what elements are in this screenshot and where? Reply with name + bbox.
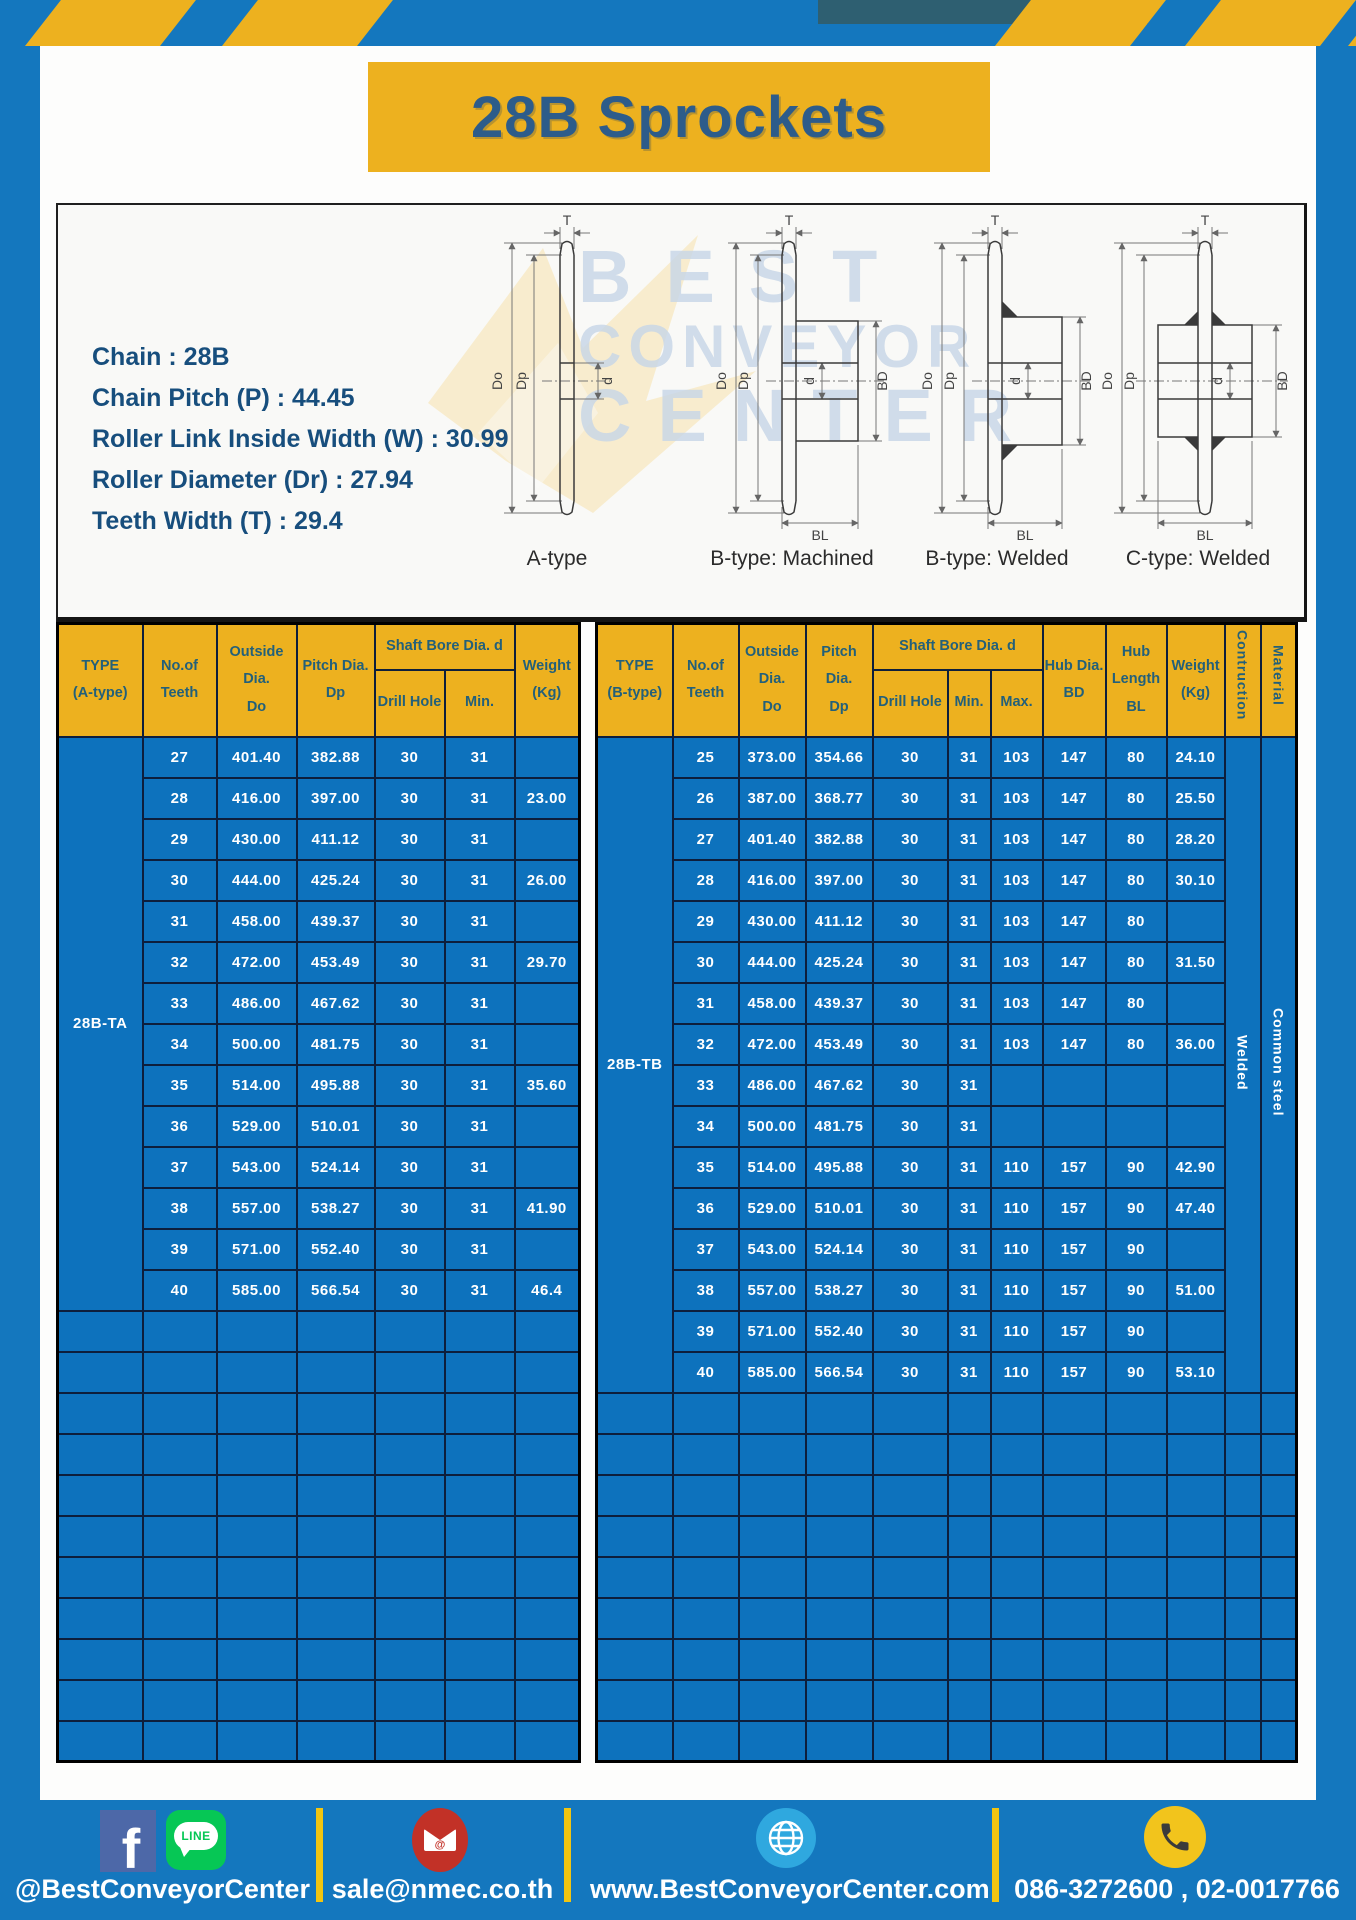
empty-cell bbox=[58, 1393, 143, 1434]
value-cell: 38 bbox=[673, 1270, 739, 1311]
page-title: 28B Sprockets bbox=[471, 84, 887, 151]
empty-cell bbox=[597, 1680, 673, 1721]
value-cell: 28 bbox=[673, 860, 739, 901]
value-cell: 30.10 bbox=[1167, 860, 1225, 901]
value-cell: 147 bbox=[1043, 1024, 1106, 1065]
value-cell: 90 bbox=[1106, 1352, 1167, 1393]
col-header-hub-dia: Hub Dia. BD bbox=[1043, 624, 1106, 737]
value-cell: 566.54 bbox=[806, 1352, 873, 1393]
value-cell: 157 bbox=[1043, 1147, 1106, 1188]
value-cell: 30 bbox=[375, 983, 445, 1024]
dim-do-label: Do bbox=[713, 372, 729, 390]
value-cell: 425.24 bbox=[806, 942, 873, 983]
empty-cell bbox=[873, 1721, 948, 1762]
empty-cell bbox=[515, 1311, 580, 1352]
value-cell: 31 bbox=[948, 983, 991, 1024]
empty-cell bbox=[58, 1352, 143, 1393]
header-row: TYPE (A-type) No.of Teeth Outside Dia. D… bbox=[58, 624, 580, 670]
value-cell: 31 bbox=[948, 860, 991, 901]
value-cell: 38 bbox=[143, 1188, 217, 1229]
empty-cell bbox=[297, 1475, 375, 1516]
empty-cell bbox=[143, 1352, 217, 1393]
col-header-shaft-bore: Shaft Bore Dia. d bbox=[375, 624, 515, 670]
empty-cell bbox=[806, 1434, 873, 1475]
header-row: TYPE (B-type) No.of Teeth Outside Dia. D… bbox=[597, 624, 1297, 670]
value-cell: 34 bbox=[673, 1106, 739, 1147]
value-cell: 500.00 bbox=[739, 1106, 806, 1147]
value-cell: 30 bbox=[375, 1024, 445, 1065]
value-cell bbox=[1106, 1106, 1167, 1147]
globe-icon bbox=[756, 1808, 816, 1868]
value-cell: 31 bbox=[445, 778, 515, 819]
value-cell: 31 bbox=[445, 983, 515, 1024]
empty-cell bbox=[1167, 1680, 1225, 1721]
data-row: 28416.00397.0030311031478030.10 bbox=[597, 860, 1297, 901]
value-cell: 40 bbox=[143, 1270, 217, 1311]
website-url: www.BestConveyorCenter.com bbox=[590, 1874, 985, 1905]
empty-cell bbox=[445, 1352, 515, 1393]
value-cell: 31 bbox=[948, 1270, 991, 1311]
value-cell: 411.12 bbox=[806, 901, 873, 942]
empty-row bbox=[58, 1434, 580, 1475]
value-cell: 157 bbox=[1043, 1188, 1106, 1229]
diagram-box: BEST CONVEYOR CENTER Chain : 28B Chain P… bbox=[56, 203, 1307, 622]
value-cell: 30 bbox=[375, 819, 445, 860]
empty-cell bbox=[375, 1311, 445, 1352]
value-cell bbox=[991, 1106, 1043, 1147]
empty-cell bbox=[597, 1475, 673, 1516]
empty-cell bbox=[1261, 1721, 1297, 1762]
diagram-label-b-machined: B-type: Machined bbox=[682, 547, 902, 571]
empty-cell bbox=[806, 1475, 873, 1516]
value-cell: 486.00 bbox=[739, 1065, 806, 1106]
value-cell: 103 bbox=[991, 1024, 1043, 1065]
empty-cell bbox=[673, 1475, 739, 1516]
value-cell: 510.01 bbox=[297, 1106, 375, 1147]
empty-cell bbox=[1043, 1393, 1106, 1434]
col-header-shaft-bore: Shaft Bore Dia. d bbox=[873, 624, 1043, 670]
value-cell: 90 bbox=[1106, 1311, 1167, 1352]
data-row: 28B-TA27401.40382.883031 bbox=[58, 737, 580, 778]
value-cell: 53.10 bbox=[1167, 1352, 1225, 1393]
line-badge-text: LINE bbox=[181, 1829, 210, 1843]
value-cell: 39 bbox=[143, 1229, 217, 1270]
empty-cell bbox=[445, 1393, 515, 1434]
empty-cell bbox=[1225, 1721, 1261, 1762]
value-cell: 32 bbox=[143, 942, 217, 983]
material-cell-text: Common steel bbox=[1271, 1008, 1285, 1116]
empty-cell bbox=[806, 1516, 873, 1557]
value-cell: 31 bbox=[445, 1229, 515, 1270]
empty-cell bbox=[873, 1598, 948, 1639]
value-cell: 31 bbox=[948, 1024, 991, 1065]
empty-cell bbox=[297, 1311, 375, 1352]
empty-row bbox=[597, 1598, 1297, 1639]
value-cell: 30 bbox=[375, 942, 445, 983]
diagram-label-a-type: A-type bbox=[442, 547, 672, 571]
value-cell: 439.37 bbox=[806, 983, 873, 1024]
social-handle: @BestConveyorCenter bbox=[5, 1874, 320, 1905]
empty-row bbox=[597, 1680, 1297, 1721]
empty-cell bbox=[143, 1516, 217, 1557]
value-cell: 32 bbox=[673, 1024, 739, 1065]
empty-cell bbox=[1261, 1557, 1297, 1598]
value-cell: 524.14 bbox=[297, 1147, 375, 1188]
value-cell: 157 bbox=[1043, 1270, 1106, 1311]
value-cell: 31 bbox=[673, 983, 739, 1024]
value-cell: 103 bbox=[991, 942, 1043, 983]
empty-cell bbox=[143, 1557, 217, 1598]
empty-cell bbox=[1043, 1434, 1106, 1475]
empty-cell bbox=[1043, 1516, 1106, 1557]
value-cell: 524.14 bbox=[806, 1229, 873, 1270]
value-cell: 30 bbox=[673, 942, 739, 983]
empty-cell bbox=[673, 1393, 739, 1434]
empty-cell bbox=[1167, 1639, 1225, 1680]
value-cell: 30 bbox=[873, 901, 948, 942]
empty-cell bbox=[217, 1598, 297, 1639]
empty-cell bbox=[58, 1434, 143, 1475]
empty-cell bbox=[948, 1393, 991, 1434]
empty-cell bbox=[873, 1680, 948, 1721]
dim-d-label: d bbox=[801, 377, 817, 385]
empty-row bbox=[597, 1475, 1297, 1516]
value-cell: 453.49 bbox=[297, 942, 375, 983]
value-cell: 30 bbox=[375, 1147, 445, 1188]
value-cell: 110 bbox=[991, 1270, 1043, 1311]
value-cell: 444.00 bbox=[217, 860, 297, 901]
value-cell: 110 bbox=[991, 1311, 1043, 1352]
value-cell: 42.90 bbox=[1167, 1147, 1225, 1188]
email-icon: @ bbox=[412, 1808, 468, 1872]
value-cell: 29 bbox=[143, 819, 217, 860]
value-cell: 430.00 bbox=[739, 901, 806, 942]
value-cell: 30 bbox=[873, 1229, 948, 1270]
value-cell: 31 bbox=[445, 1188, 515, 1229]
empty-cell bbox=[297, 1680, 375, 1721]
b-type-table: TYPE (B-type) No.of Teeth Outside Dia. D… bbox=[595, 622, 1298, 1763]
value-cell: 31 bbox=[445, 1065, 515, 1106]
value-cell bbox=[515, 1229, 580, 1270]
value-cell: 30 bbox=[873, 819, 948, 860]
empty-cell bbox=[1106, 1598, 1167, 1639]
empty-row bbox=[58, 1557, 580, 1598]
empty-cell bbox=[739, 1434, 806, 1475]
value-cell: 397.00 bbox=[806, 860, 873, 901]
empty-cell bbox=[1225, 1393, 1261, 1434]
empty-cell bbox=[515, 1598, 580, 1639]
empty-cell bbox=[297, 1393, 375, 1434]
empty-cell bbox=[873, 1434, 948, 1475]
value-cell: 411.12 bbox=[297, 819, 375, 860]
value-cell: 31 bbox=[143, 901, 217, 942]
empty-cell bbox=[515, 1434, 580, 1475]
empty-cell bbox=[515, 1557, 580, 1598]
data-row: 26387.00368.7730311031478025.50 bbox=[597, 778, 1297, 819]
data-row: 32472.00453.4930311031478036.00 bbox=[597, 1024, 1297, 1065]
empty-cell bbox=[991, 1680, 1043, 1721]
empty-cell bbox=[217, 1557, 297, 1598]
empty-cell bbox=[217, 1434, 297, 1475]
value-cell bbox=[515, 901, 580, 942]
empty-cell bbox=[445, 1311, 515, 1352]
value-cell: 27 bbox=[673, 819, 739, 860]
value-cell: 472.00 bbox=[217, 942, 297, 983]
value-cell: 387.00 bbox=[739, 778, 806, 819]
empty-cell bbox=[1043, 1680, 1106, 1721]
value-cell: 514.00 bbox=[217, 1065, 297, 1106]
empty-cell bbox=[991, 1557, 1043, 1598]
empty-cell bbox=[515, 1680, 580, 1721]
facebook-icon: f bbox=[100, 1810, 156, 1872]
col-header-min: Min. bbox=[948, 670, 991, 737]
empty-cell bbox=[58, 1721, 143, 1762]
value-cell: 368.77 bbox=[806, 778, 873, 819]
empty-cell bbox=[806, 1721, 873, 1762]
empty-cell bbox=[597, 1557, 673, 1598]
empty-cell bbox=[873, 1393, 948, 1434]
value-cell: 585.00 bbox=[217, 1270, 297, 1311]
line-bubble: LINE bbox=[174, 1822, 218, 1850]
value-cell: 425.24 bbox=[297, 860, 375, 901]
value-cell: 36 bbox=[673, 1188, 739, 1229]
value-cell: 31 bbox=[948, 1352, 991, 1393]
value-cell: 110 bbox=[991, 1188, 1043, 1229]
empty-cell bbox=[1261, 1475, 1297, 1516]
col-header-outside: Outside Dia. Do bbox=[217, 624, 297, 737]
value-cell: 495.88 bbox=[297, 1065, 375, 1106]
empty-cell bbox=[1106, 1516, 1167, 1557]
value-cell: 37 bbox=[673, 1229, 739, 1270]
value-cell: 31 bbox=[948, 1188, 991, 1229]
empty-row bbox=[597, 1639, 1297, 1680]
value-cell: 30 bbox=[375, 860, 445, 901]
value-cell bbox=[1167, 1106, 1225, 1147]
footer-divider bbox=[564, 1808, 571, 1902]
hazard-stripe bbox=[1185, 0, 1356, 46]
dim-d-label: d bbox=[1209, 377, 1225, 385]
value-cell bbox=[1167, 1229, 1225, 1270]
empty-cell bbox=[806, 1393, 873, 1434]
empty-cell bbox=[297, 1434, 375, 1475]
value-cell: 51.00 bbox=[1167, 1270, 1225, 1311]
at-glyph: @ bbox=[435, 1840, 446, 1851]
value-cell: 31 bbox=[445, 1147, 515, 1188]
col-header-teeth: No.of Teeth bbox=[143, 624, 217, 737]
value-cell: 401.40 bbox=[739, 819, 806, 860]
value-cell: 31 bbox=[445, 1270, 515, 1311]
value-cell: 31.50 bbox=[1167, 942, 1225, 983]
empty-cell bbox=[375, 1721, 445, 1762]
value-cell: 30 bbox=[375, 737, 445, 778]
value-cell bbox=[515, 819, 580, 860]
empty-cell bbox=[1106, 1639, 1167, 1680]
diagram-a-type: T Do Dp d A-type bbox=[442, 213, 672, 571]
value-cell: 103 bbox=[991, 819, 1043, 860]
value-cell: 30 bbox=[375, 1229, 445, 1270]
empty-cell bbox=[58, 1680, 143, 1721]
construction-header-text: Contruction bbox=[1236, 630, 1250, 720]
empty-cell bbox=[1261, 1516, 1297, 1557]
empty-cell bbox=[673, 1434, 739, 1475]
empty-cell bbox=[597, 1434, 673, 1475]
value-cell: 30 bbox=[375, 778, 445, 819]
value-cell bbox=[1167, 983, 1225, 1024]
empty-cell bbox=[873, 1516, 948, 1557]
value-cell: 31 bbox=[948, 737, 991, 778]
empty-cell bbox=[991, 1434, 1043, 1475]
col-header-drill: Drill Hole bbox=[375, 670, 445, 737]
construction-cell-text: Welded bbox=[1236, 1035, 1250, 1091]
empty-cell bbox=[58, 1639, 143, 1680]
empty-cell bbox=[217, 1311, 297, 1352]
empty-cell bbox=[297, 1721, 375, 1762]
empty-cell bbox=[673, 1557, 739, 1598]
diagram-label-b-welded: B-type: Welded bbox=[892, 547, 1102, 571]
value-cell: 30 bbox=[873, 860, 948, 901]
value-cell: 90 bbox=[1106, 1229, 1167, 1270]
empty-cell bbox=[991, 1721, 1043, 1762]
empty-cell bbox=[143, 1680, 217, 1721]
col-header-drill: Drill Hole bbox=[873, 670, 948, 737]
empty-cell bbox=[143, 1434, 217, 1475]
empty-cell bbox=[143, 1311, 217, 1352]
empty-cell bbox=[673, 1516, 739, 1557]
value-cell: 27 bbox=[143, 737, 217, 778]
empty-cell bbox=[445, 1680, 515, 1721]
value-cell: 35.60 bbox=[515, 1065, 580, 1106]
value-cell: 430.00 bbox=[217, 819, 297, 860]
value-cell: 90 bbox=[1106, 1147, 1167, 1188]
dim-do-label: Do bbox=[489, 372, 505, 390]
value-cell bbox=[515, 1106, 580, 1147]
empty-cell bbox=[1043, 1557, 1106, 1598]
value-cell: 147 bbox=[1043, 860, 1106, 901]
empty-cell bbox=[739, 1516, 806, 1557]
dim-dp-label: Dp bbox=[735, 372, 751, 390]
hazard-stripe bbox=[25, 0, 196, 46]
value-cell: 26.00 bbox=[515, 860, 580, 901]
empty-cell bbox=[991, 1639, 1043, 1680]
value-cell: 31 bbox=[445, 737, 515, 778]
empty-cell bbox=[673, 1639, 739, 1680]
type-group-cell: 28B-TA bbox=[58, 737, 143, 1311]
empty-cell bbox=[217, 1516, 297, 1557]
data-row: 40585.00566.5430311101579053.10 bbox=[597, 1352, 1297, 1393]
col-header-pitch: Pitch Dia. Dp bbox=[806, 624, 873, 737]
value-cell: 46.4 bbox=[515, 1270, 580, 1311]
value-cell: 30 bbox=[375, 901, 445, 942]
empty-cell bbox=[58, 1311, 143, 1352]
empty-cell bbox=[1225, 1598, 1261, 1639]
value-cell: 110 bbox=[991, 1229, 1043, 1270]
dim-d-label: d bbox=[1007, 377, 1023, 385]
empty-cell bbox=[445, 1639, 515, 1680]
empty-cell bbox=[375, 1598, 445, 1639]
empty-cell bbox=[217, 1475, 297, 1516]
empty-cell bbox=[515, 1721, 580, 1762]
value-cell: 30 bbox=[873, 1270, 948, 1311]
value-cell bbox=[1043, 1065, 1106, 1106]
empty-cell bbox=[1167, 1475, 1225, 1516]
value-cell: 147 bbox=[1043, 778, 1106, 819]
value-cell bbox=[1043, 1106, 1106, 1147]
value-cell: 103 bbox=[991, 901, 1043, 942]
value-cell: 31 bbox=[948, 1311, 991, 1352]
dim-bl-label: BL bbox=[811, 527, 828, 543]
empty-cell bbox=[515, 1516, 580, 1557]
empty-cell bbox=[143, 1721, 217, 1762]
value-cell: 514.00 bbox=[739, 1147, 806, 1188]
empty-cell bbox=[1261, 1434, 1297, 1475]
dim-t-label: T bbox=[785, 213, 794, 228]
data-row: 36529.00510.0130311101579047.40 bbox=[597, 1188, 1297, 1229]
a-type-table: TYPE (A-type) No.of Teeth Outside Dia. D… bbox=[56, 622, 581, 1763]
empty-row bbox=[597, 1516, 1297, 1557]
value-cell: 30 bbox=[873, 1147, 948, 1188]
value-cell: 103 bbox=[991, 983, 1043, 1024]
empty-cell bbox=[217, 1393, 297, 1434]
empty-cell bbox=[948, 1680, 991, 1721]
value-cell: 90 bbox=[1106, 1188, 1167, 1229]
empty-cell bbox=[806, 1639, 873, 1680]
col-header-type: TYPE (A-type) bbox=[58, 624, 143, 737]
dim-bl-label: BL bbox=[1016, 527, 1033, 543]
value-cell: 458.00 bbox=[217, 901, 297, 942]
value-cell: 34 bbox=[143, 1024, 217, 1065]
value-cell: 36 bbox=[143, 1106, 217, 1147]
empty-cell bbox=[58, 1598, 143, 1639]
empty-cell bbox=[1225, 1557, 1261, 1598]
empty-cell bbox=[375, 1516, 445, 1557]
value-cell: 31 bbox=[445, 1024, 515, 1065]
empty-cell bbox=[1106, 1475, 1167, 1516]
empty-cell bbox=[1106, 1721, 1167, 1762]
value-cell: 103 bbox=[991, 860, 1043, 901]
col-header-pitch: Pitch Dia. Dp bbox=[297, 624, 375, 737]
value-cell: 444.00 bbox=[739, 942, 806, 983]
empty-cell bbox=[1043, 1639, 1106, 1680]
empty-row bbox=[58, 1393, 580, 1434]
empty-cell bbox=[739, 1639, 806, 1680]
empty-cell bbox=[58, 1557, 143, 1598]
value-cell: 31 bbox=[948, 901, 991, 942]
empty-cell bbox=[673, 1721, 739, 1762]
value-cell: 40 bbox=[673, 1352, 739, 1393]
value-cell: 41.90 bbox=[515, 1188, 580, 1229]
value-cell: 29.70 bbox=[515, 942, 580, 983]
col-header-weight: Weight (Kg) bbox=[515, 624, 580, 737]
dim-do-label: Do bbox=[1099, 372, 1115, 390]
empty-cell bbox=[297, 1557, 375, 1598]
empty-cell bbox=[948, 1639, 991, 1680]
value-cell: 31 bbox=[948, 1147, 991, 1188]
value-cell: 31 bbox=[948, 942, 991, 983]
empty-cell bbox=[948, 1475, 991, 1516]
dim-do-label: Do bbox=[919, 372, 935, 390]
empty-cell bbox=[297, 1516, 375, 1557]
value-cell: 157 bbox=[1043, 1352, 1106, 1393]
value-cell: 481.75 bbox=[806, 1106, 873, 1147]
data-row: 35514.00495.8830311101579042.90 bbox=[597, 1147, 1297, 1188]
value-cell bbox=[1167, 901, 1225, 942]
data-row: 28B-TB25373.00354.6630311031478024.10Wel… bbox=[597, 737, 1297, 778]
value-cell: 354.66 bbox=[806, 737, 873, 778]
value-cell: 495.88 bbox=[806, 1147, 873, 1188]
empty-cell bbox=[375, 1352, 445, 1393]
value-cell: 147 bbox=[1043, 819, 1106, 860]
empty-cell bbox=[739, 1557, 806, 1598]
